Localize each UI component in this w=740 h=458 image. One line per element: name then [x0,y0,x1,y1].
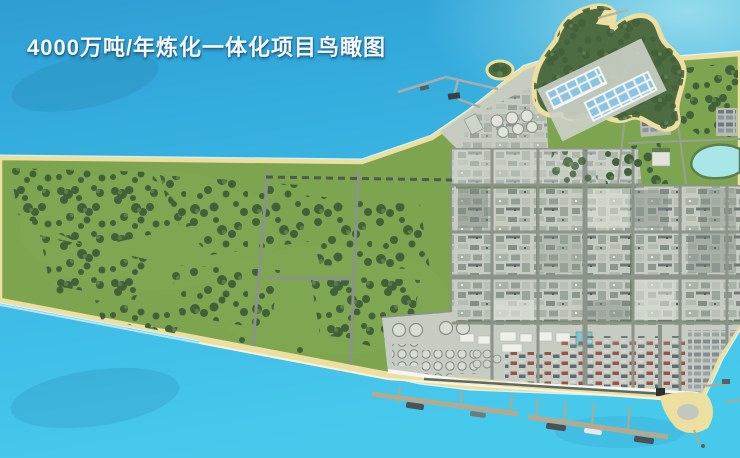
page-title: 4000万吨/年炼化一体化项目鸟瞰图 [27,30,386,62]
birdseye-scene [0,0,740,458]
cove-pad [677,404,699,420]
aerial-rendering: 4000万吨/年炼化一体化项目鸟瞰图 [0,0,740,458]
boat-dot [701,444,705,448]
parking-lot-east [716,108,738,136]
road-junction-pad [656,388,665,396]
lagoon [691,145,740,179]
islet [487,61,513,79]
woods-small [548,150,598,184]
utility-building [652,148,670,166]
container-yard-upper [560,336,685,352]
ship-small [722,379,730,384]
